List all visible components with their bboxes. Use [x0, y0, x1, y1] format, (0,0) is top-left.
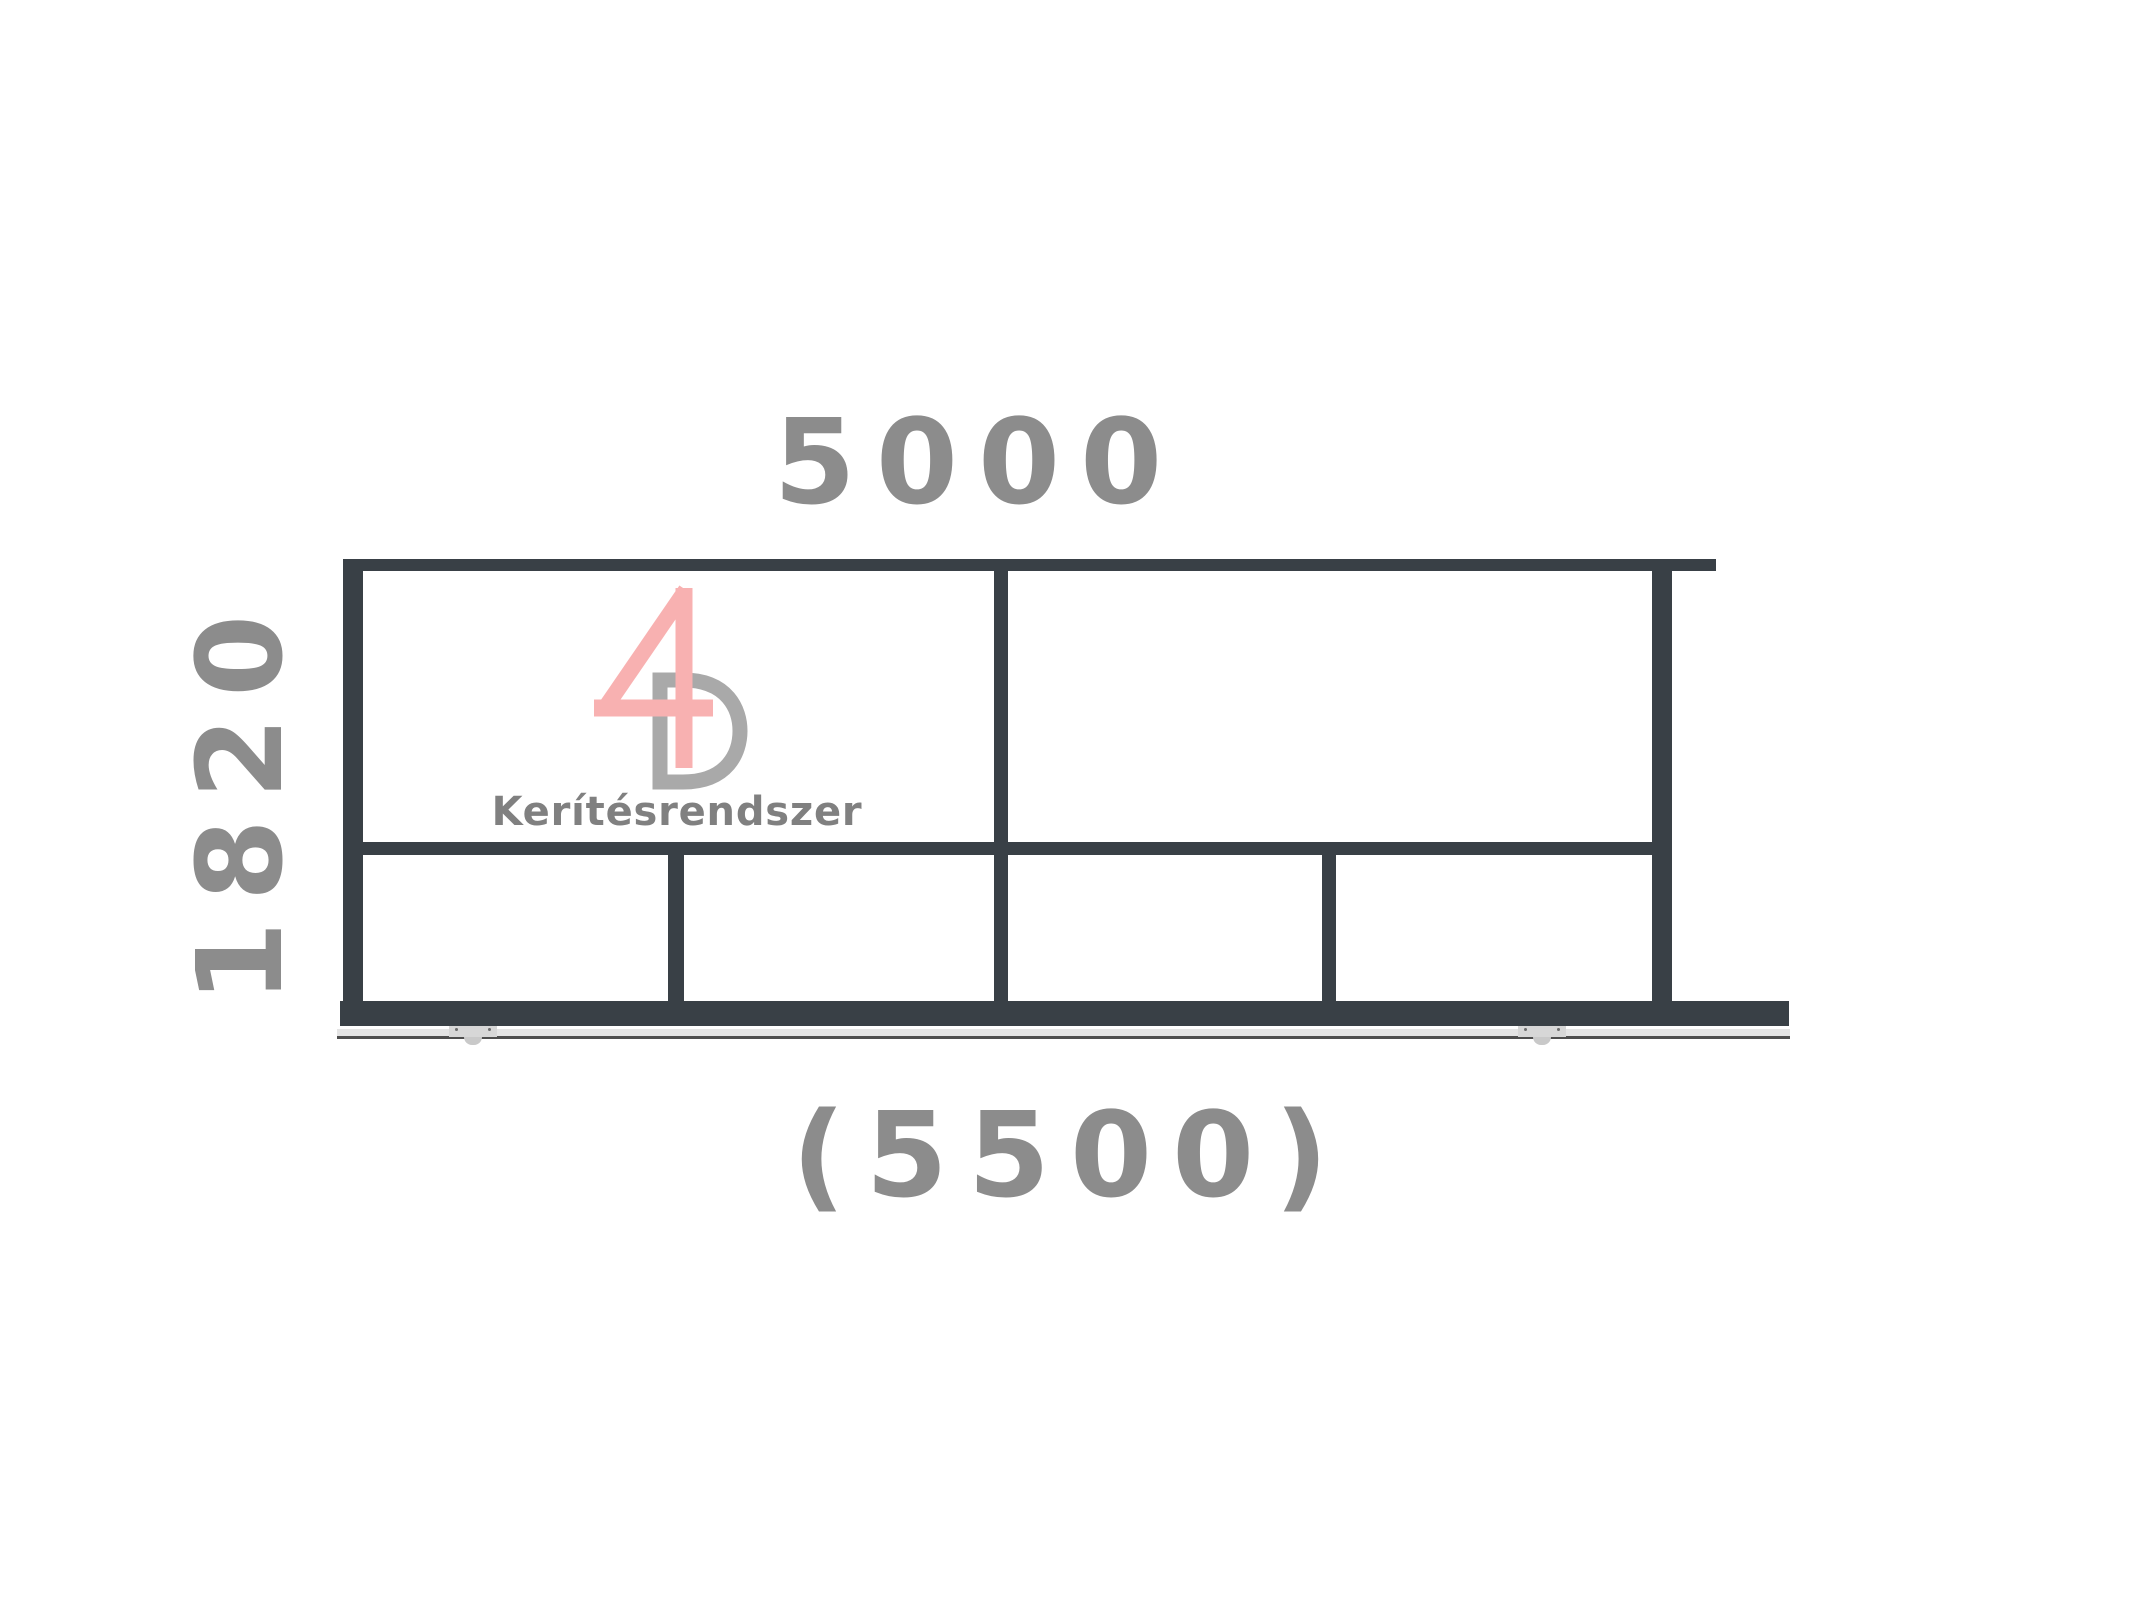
- ground-track-edge: [337, 1036, 1790, 1039]
- bolt-icon: [1524, 1028, 1527, 1031]
- roller-carriage-right: [1518, 1026, 1566, 1037]
- drawing-canvas: 5000 1820 (5500) Kerítésr: [0, 0, 2133, 1600]
- dimension-overall-length-label: (5500): [792, 1096, 1349, 1214]
- roller-wheel: [1533, 1037, 1551, 1045]
- lower-divider-right: [1322, 855, 1336, 1003]
- dimension-width-label: 5000: [774, 403, 1183, 521]
- logo-subtitle: Kerítésrendszer: [492, 792, 863, 832]
- roller-carriage-left: [449, 1026, 497, 1037]
- bottom-rail: [340, 1001, 1789, 1026]
- roller-wheel: [464, 1037, 482, 1045]
- right-post: [1652, 559, 1672, 1003]
- dimension-height-label: 1820: [181, 595, 299, 1004]
- bolt-icon: [455, 1028, 458, 1031]
- bolt-icon: [1557, 1028, 1560, 1031]
- bolt-icon: [488, 1028, 491, 1031]
- lower-divider-center: [994, 855, 1008, 1003]
- lower-divider-left: [668, 855, 684, 1003]
- upper-center-divider: [994, 571, 1008, 842]
- left-post: [343, 559, 363, 1003]
